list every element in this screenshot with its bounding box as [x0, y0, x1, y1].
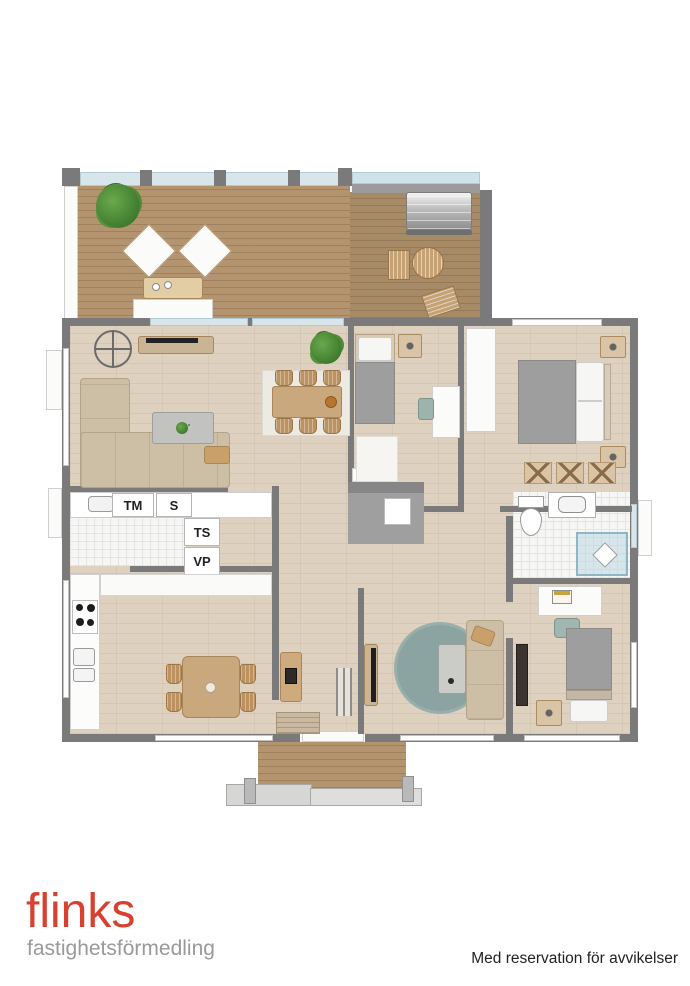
porch-post	[244, 778, 256, 804]
window-master-top	[512, 319, 602, 326]
logo-subtitle: fastighetsförmedling	[27, 938, 215, 959]
fireplace-top	[348, 482, 424, 493]
label-heat-pump: VP	[184, 547, 220, 575]
window-kitchen-bottom	[155, 735, 273, 741]
deck-post	[214, 170, 226, 186]
deck-post	[140, 170, 152, 186]
bedroom-rug	[356, 436, 398, 482]
bbq-grill	[406, 192, 472, 230]
headboard	[604, 364, 611, 440]
bench-stool	[524, 462, 552, 484]
nightstand	[536, 700, 562, 726]
deck-wall-right	[480, 190, 492, 320]
double-bed-pillows	[576, 362, 604, 442]
stove-burner	[87, 604, 95, 612]
nightstand	[600, 336, 626, 358]
kitchen-chair	[240, 692, 256, 712]
deck-post	[288, 170, 300, 186]
double-bed-duvet	[518, 360, 576, 444]
sliding-door-to-deck	[150, 318, 248, 326]
logo-flinks: flinks	[26, 888, 135, 936]
window-bedroom-right	[631, 642, 637, 708]
dining-chair	[275, 418, 293, 434]
laundry-floor-tile	[70, 518, 186, 566]
dining-chair	[275, 370, 293, 386]
toilet-tank	[518, 496, 544, 508]
single-bed-duvet	[566, 628, 612, 690]
glass-railing-left	[64, 186, 78, 332]
window-living-left	[63, 348, 69, 466]
interior-wall	[506, 638, 513, 736]
glass-roof-panels	[352, 172, 480, 184]
label-vp-text: VP	[193, 554, 210, 569]
stove-burner	[87, 619, 94, 626]
porch-step	[226, 784, 312, 806]
dining-chair	[299, 370, 317, 386]
dining-chair	[299, 418, 317, 434]
ceiling-fan-icon	[94, 330, 132, 368]
deck-post	[62, 168, 80, 186]
dining-chair	[323, 370, 341, 386]
bed-foot-band	[566, 690, 612, 700]
deck-post	[338, 168, 352, 186]
disclaimer-text: Med reservation för avvikelser	[471, 950, 678, 968]
floor-plan: TM S TS VP	[0, 0, 690, 986]
porch-deck	[258, 742, 406, 788]
window-tvroom-bottom	[400, 735, 494, 741]
table-deco	[448, 678, 454, 684]
bed-duvet	[355, 362, 395, 424]
pillow-divider	[578, 400, 602, 402]
wash-basin	[558, 496, 586, 513]
interior-wall	[506, 578, 630, 584]
label-drying-cabinet: TS	[184, 518, 220, 546]
label-dryer: S	[156, 493, 192, 517]
coffee-table	[438, 644, 466, 694]
tv-screen	[371, 648, 376, 702]
sofa-tray	[204, 446, 230, 464]
window-bedroom-bottom	[524, 735, 620, 741]
laptop-keys	[554, 591, 570, 595]
outdoor-chair	[388, 250, 410, 280]
window-living-top	[252, 318, 344, 326]
dining-bowl	[325, 396, 337, 408]
label-ts-text: TS	[194, 525, 211, 540]
kitchen-sink	[73, 648, 95, 666]
window-sill	[46, 350, 62, 410]
stove-burner	[76, 618, 84, 626]
nightstand	[398, 334, 422, 358]
window-sill	[48, 488, 62, 538]
cup	[164, 281, 172, 289]
outdoor-bistro-table	[412, 247, 444, 279]
label-tm-text: TM	[124, 498, 143, 513]
porch-post	[402, 776, 414, 802]
kitchen-sink	[73, 668, 95, 682]
label-washing-machine: TM	[112, 493, 154, 517]
kitchen-counter-top	[100, 574, 272, 596]
interior-wall	[506, 516, 513, 602]
laundry-sink	[88, 496, 114, 512]
table-plant	[176, 422, 188, 434]
tv-screen	[146, 338, 198, 343]
bbq-grill-handle	[406, 230, 472, 235]
window-sill	[638, 500, 652, 556]
kitchen-chair	[166, 664, 182, 684]
desk	[432, 386, 460, 438]
label-s-text: S	[170, 498, 179, 513]
kitchen-chair	[166, 692, 182, 712]
dining-chair	[323, 418, 341, 434]
interior-wall	[272, 486, 279, 700]
kitchen-chair	[240, 664, 256, 684]
doormat	[276, 712, 320, 734]
potted-plant	[96, 184, 140, 228]
kitchen-plate	[205, 682, 216, 693]
stove-burner	[76, 604, 83, 611]
bench-stool	[588, 462, 616, 484]
desk-chair	[418, 398, 434, 420]
living-plant	[310, 332, 342, 364]
coat-rack	[336, 668, 352, 716]
bed-pillow	[358, 337, 392, 361]
wardrobe-dark	[516, 644, 528, 706]
bench-stool	[556, 462, 584, 484]
wardrobe	[466, 328, 496, 432]
cup	[152, 283, 160, 291]
hall-picture	[285, 668, 297, 684]
window-kitchen-left	[63, 580, 69, 698]
bed-pillow	[570, 700, 608, 722]
fireplace-opening	[384, 498, 411, 525]
